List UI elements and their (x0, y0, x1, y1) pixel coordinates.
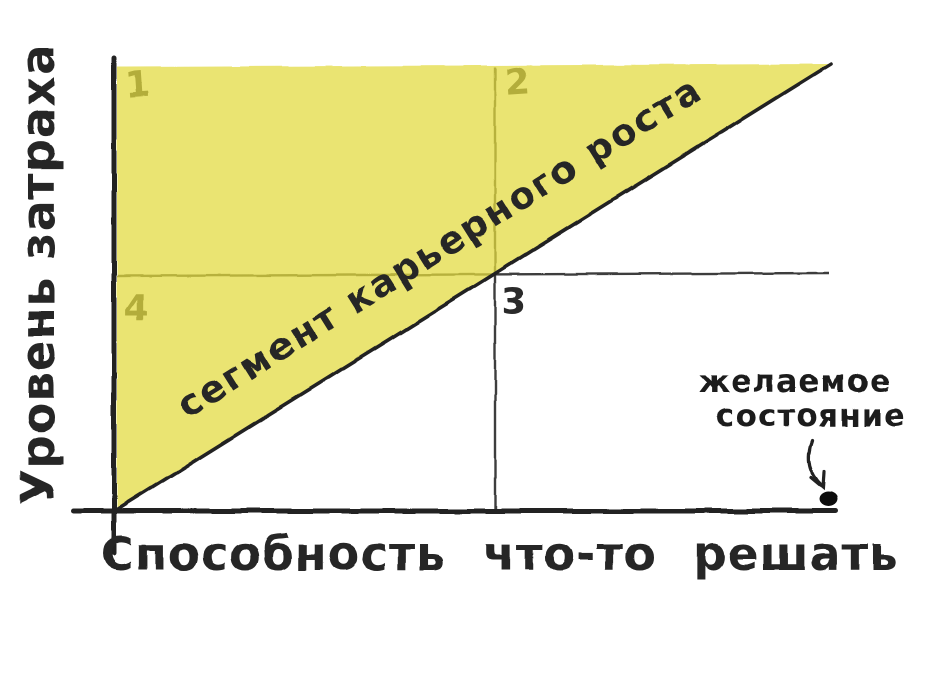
sketch-canvas: 1 2 4 3 сегмент карьерного роста Уровень… (0, 0, 950, 700)
x-axis-label: Способность что-то решать (101, 527, 900, 581)
desired-state-label-line1: желаемое (699, 364, 891, 400)
y-axis-label: Уровень затраха (11, 43, 65, 504)
desired-state-dot (819, 492, 837, 507)
desired-state-label-line2: состояние (716, 398, 906, 434)
quadrant-label-3: 3 (501, 281, 526, 322)
career-growth-chart: 1 2 4 3 сегмент карьерного роста Уровень… (0, 0, 950, 700)
